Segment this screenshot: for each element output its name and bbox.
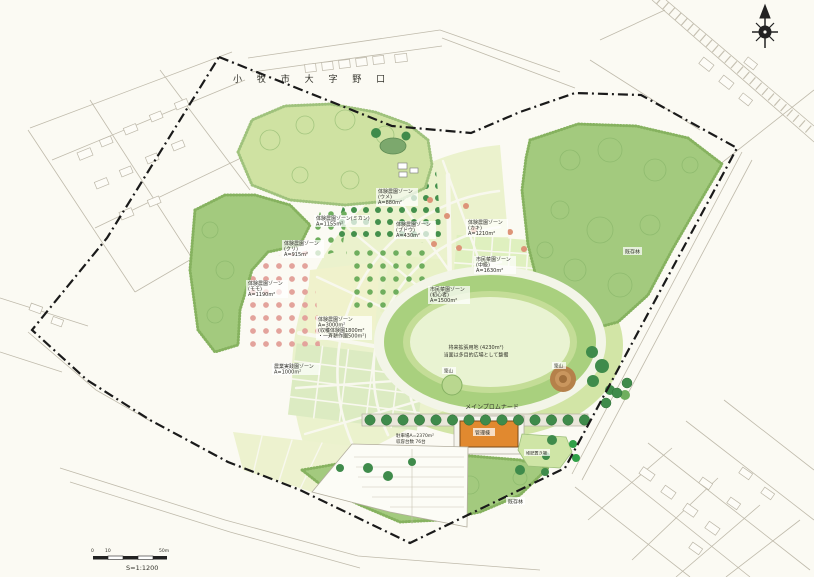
scale-tick: 0 (91, 548, 94, 554)
zone-label: A=1210m² (468, 231, 495, 237)
zone-label: A=1500m² (430, 298, 457, 304)
parking-label: 収容台数 76台 (396, 438, 426, 445)
parking-label: 駐車場A=2370m² (396, 432, 434, 439)
zone-label: A=1000m² (274, 370, 301, 376)
scale-tick: 50m (159, 548, 169, 554)
oval-infield (410, 297, 570, 387)
zone-label: A=1155m² (316, 222, 343, 228)
tree-icon (572, 454, 580, 462)
tree-icon (402, 132, 411, 141)
compost-label: 堆肥置き場 (526, 450, 548, 457)
tree-icon (547, 435, 557, 445)
site-plan-scan: 0 10 50m S=1:1200 小 牧 市 大 字 野 口 体験農園ゾーン … (0, 0, 814, 577)
zone-label: A=1190m² (248, 292, 275, 298)
zone-label: ・一斉耕作園500m²) (318, 333, 366, 340)
mound-right-top (559, 375, 567, 383)
tree-icon (371, 128, 381, 138)
mound-label: 築山 (444, 368, 453, 375)
location-title: 小 牧 市 大 字 野 口 (233, 73, 391, 85)
existing-forest-label: 既存林 (625, 249, 640, 256)
zone-label: A=880m² (378, 200, 402, 206)
pond (380, 138, 406, 154)
scale-tick: 10 (105, 548, 111, 554)
zone-label: A=915m² (284, 252, 308, 258)
existing-forest-label: 既存林 (508, 499, 523, 506)
future-expansion-label: 将来拡張用地 (4230m²) (448, 344, 503, 351)
mound-label: 築山 (554, 363, 563, 370)
promenade-label: メインプロムナード (465, 404, 519, 411)
site-plan-drawing: 0 10 50m S=1:1200 小 牧 市 大 字 野 口 体験農園ゾーン … (0, 0, 814, 577)
future-expansion-label: 当面は多目的広場として整備 (444, 352, 509, 359)
zone-label: A=430m² (396, 233, 420, 239)
mound-left (442, 375, 462, 395)
zone-label: A=1630m² (476, 268, 503, 274)
admin-building-label: 管理棟 (475, 430, 490, 437)
tree-icon (569, 440, 577, 448)
scale-ratio: S=1:1200 (126, 564, 158, 572)
